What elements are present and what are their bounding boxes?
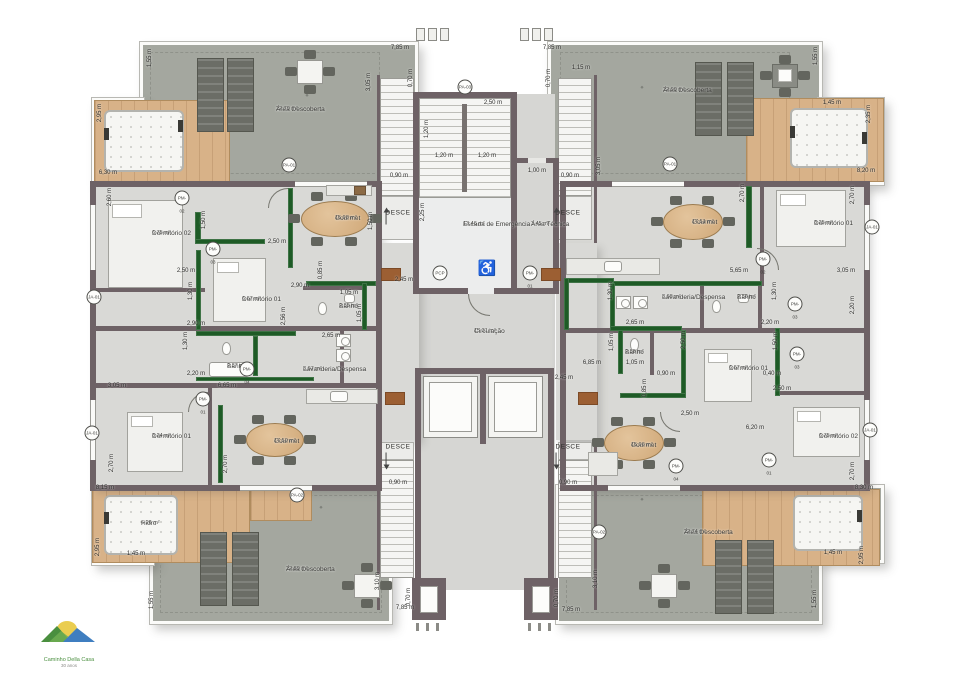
dimension-label: 0,70 m	[406, 588, 412, 606]
elevator-cabin	[494, 382, 537, 432]
roof-vent	[520, 28, 529, 41]
dimension-label: 1,30 m	[183, 332, 189, 350]
window	[864, 205, 870, 270]
sliding-door	[612, 181, 684, 187]
dimension-label: 2,50 m	[177, 268, 195, 274]
door-tag: PA-02	[592, 525, 607, 540]
tub-headrest	[857, 510, 862, 522]
roof-vent	[428, 28, 437, 41]
tub-headrest	[790, 126, 795, 138]
washing-machine	[616, 296, 631, 309]
kitchen-sink	[330, 391, 348, 402]
door-tag: PA-03	[458, 80, 473, 95]
door-tag: PM-01	[523, 266, 538, 281]
dimension-label: 2,70 m	[740, 184, 746, 202]
patio-table-set	[344, 565, 390, 607]
dimension-label: 2,20 m	[761, 320, 779, 326]
wall	[700, 283, 704, 328]
dimension-label: 3,05 m	[837, 268, 855, 274]
floor-plan: ♿	[0, 0, 962, 680]
door-tag: JA-01	[87, 290, 102, 305]
hidro-tub	[793, 495, 863, 551]
dimension-label: 1,45 m	[127, 551, 145, 557]
dimension-label: 6,20 m	[746, 425, 764, 431]
dimension-label: 2,70 m	[109, 454, 115, 472]
tub-headrest	[104, 512, 109, 524]
dimension-label: 2,50 m	[484, 100, 502, 106]
door-tag: PM-01	[762, 453, 777, 468]
dimension-label: 6,30 m	[99, 170, 117, 176]
dimension-label: 0,90 m	[559, 480, 577, 486]
dimension-label: 1,45 m	[823, 100, 841, 106]
dimension-label: 8,30 m	[855, 485, 873, 491]
section-tick	[548, 623, 551, 631]
dimension-label: 2,95 m	[859, 546, 865, 564]
section-tick	[426, 623, 429, 631]
dimension-label: 0,85 m	[318, 261, 324, 279]
hidro-tub	[790, 108, 868, 168]
desce-label: DESCE	[556, 210, 581, 217]
green-wall	[196, 331, 296, 336]
dimension-label: 0,40 m	[763, 371, 781, 377]
dimension-label: 1,55 m	[149, 591, 155, 609]
entry-mat	[385, 392, 405, 405]
green-wall	[196, 377, 314, 381]
dimension-label: 2,45 m	[395, 277, 413, 283]
sun-lounger	[727, 62, 754, 136]
dimension-label: 3,05 m	[366, 73, 372, 91]
tub-headrest	[178, 120, 183, 132]
desce-label: DESCE	[386, 210, 411, 217]
door-tag: PA-01	[663, 157, 678, 172]
corridor-wall	[415, 440, 421, 588]
core-wall	[413, 288, 517, 294]
dimension-label: 0,85 m	[642, 379, 648, 397]
sun-lounger	[227, 58, 254, 132]
wall	[650, 330, 654, 375]
dimension-label: 1,50 m	[201, 211, 207, 229]
dimension-label: 2,56 m	[281, 307, 287, 325]
dimension-label: 7,85 m	[396, 605, 414, 611]
toilet	[712, 300, 721, 313]
dimension-label: 3,05 m	[108, 383, 126, 389]
dimension-label: 2,65 m	[322, 333, 340, 339]
dimension-label: 8,15 m	[96, 485, 114, 491]
dimension-label: 1,20 m	[478, 153, 496, 159]
core-wall	[511, 288, 559, 294]
entry-mat	[541, 268, 561, 281]
tub-headrest	[862, 132, 867, 144]
dimension-label: 6,85 m	[583, 360, 601, 366]
dimension-label: 2,90 m	[187, 321, 205, 327]
door-tag: PM-03	[790, 347, 805, 362]
dimension-label: 1,55 m	[147, 49, 153, 67]
roof-vent	[416, 28, 425, 41]
door-tag: PM-03	[206, 242, 221, 257]
bed-pillow	[112, 204, 142, 218]
dimension-label: 2,25 m	[420, 203, 426, 221]
dimension-label: 2,95 m	[97, 104, 103, 122]
dimension-label: 1,50 m	[773, 332, 779, 350]
door-tag: PM-03	[788, 297, 803, 312]
bed-pillow	[797, 411, 821, 422]
section-tick	[436, 623, 439, 631]
washing-machine	[336, 349, 351, 362]
dimension-label: 2,70 m	[850, 462, 856, 480]
tub-headrest	[104, 128, 109, 140]
dimension-label: 2,20 m	[850, 296, 856, 314]
elevator-wall	[415, 368, 421, 444]
dimension-label: 2,50 m	[773, 386, 791, 392]
green-wall	[564, 278, 569, 330]
dimension-label: 1,15 m	[572, 65, 590, 71]
dimension-label: 1,55 m	[813, 47, 819, 65]
dimension-label: 2,35 m	[866, 105, 872, 123]
door-tag: PM-02	[756, 252, 771, 267]
wall	[560, 181, 870, 187]
dimension-label: 0,90 m	[389, 480, 407, 486]
stairs-bottom-left	[380, 460, 414, 578]
dimension-label: 1,05 m	[626, 360, 644, 366]
door-tag: PM-04	[669, 459, 684, 474]
green-wall	[618, 330, 623, 374]
dimension-label: 2,70 m	[223, 455, 229, 473]
dimension-label: 2,20 m	[187, 371, 205, 377]
elevator-wall	[480, 368, 486, 444]
kitchen-appliance	[354, 186, 366, 195]
dimension-label: 2,70 m	[850, 186, 856, 204]
kitchen-counter	[588, 452, 618, 476]
wall	[560, 485, 870, 491]
bed-pillow	[780, 194, 806, 206]
wheelchair-icon: ♿	[478, 259, 497, 277]
desce-label: DESCE	[556, 444, 581, 451]
elevator-wall	[548, 368, 554, 444]
section-tick	[528, 623, 531, 631]
sliding-door	[608, 485, 680, 491]
bed-pillow	[708, 353, 728, 363]
sun-lounger	[695, 62, 722, 136]
dimension-label: 0,70 m	[408, 69, 414, 87]
entry-door-recess	[420, 586, 438, 613]
dimension-label: 2,50 m	[681, 331, 687, 349]
green-wall	[196, 250, 201, 330]
corridor-wall	[548, 440, 554, 588]
door-tag: PM-01	[196, 392, 211, 407]
door-tag: PM-02	[175, 191, 190, 206]
door-tag: PCP	[433, 266, 448, 281]
entry-door-recess	[532, 586, 550, 613]
dimension-label: 1,50 m	[368, 212, 374, 230]
dimension-label: 2,95 m	[95, 538, 101, 556]
wall	[560, 328, 870, 333]
roof-vent	[544, 28, 553, 41]
elevator-cabin	[429, 382, 472, 432]
dimension-label: 2,90 m	[291, 283, 309, 289]
door-tag: JA-01	[85, 426, 100, 441]
sun-lounger	[747, 540, 774, 614]
tecnica-door-gap	[528, 158, 546, 163]
door-tag: PA-01	[282, 158, 297, 173]
kitchen-sink	[604, 261, 622, 272]
dimension-label: 2,60 m	[107, 188, 113, 206]
logo-mark	[37, 618, 101, 652]
bed-pillow	[217, 262, 239, 273]
sun-lounger	[197, 58, 224, 132]
green-wall	[746, 186, 752, 248]
dimension-label: 2,50 m	[681, 411, 699, 417]
door-tag: PM-04	[240, 362, 255, 377]
dimension-label: 8,20 m	[857, 168, 875, 174]
washing-machine	[633, 296, 648, 309]
green-wall	[612, 281, 762, 286]
dimension-label: 1,20 m	[424, 120, 430, 138]
green-wall	[566, 278, 614, 283]
company-logo: Caminho Della Casa 30 anos	[26, 618, 112, 668]
dimension-label: 1,30 m	[772, 282, 778, 300]
dimension-label: 1,20 m	[435, 153, 453, 159]
green-wall	[620, 393, 686, 398]
dimension-label: 3,10 m	[593, 570, 599, 588]
core-wall	[413, 92, 419, 294]
dimension-label: 3,10 m	[375, 572, 381, 590]
green-wall	[195, 239, 265, 244]
dimension-label: 0,70 m	[554, 589, 560, 607]
dimension-label: 7,85 m	[391, 45, 409, 51]
entry-mat	[578, 392, 598, 405]
desce-label: DESCE	[386, 444, 411, 451]
toilet	[318, 302, 327, 315]
dimension-label: 1,45 m	[824, 550, 842, 556]
window	[90, 205, 96, 270]
sun-lounger	[715, 540, 742, 614]
roof-vent	[532, 28, 541, 41]
patio-table-set	[642, 566, 687, 606]
hidro-tub	[104, 110, 184, 172]
dimension-label: 1,05 m	[609, 333, 615, 351]
bed-pillow	[131, 416, 153, 427]
dimension-label: 1,30 m	[188, 282, 194, 300]
dimension-label: 1,05 m	[340, 290, 358, 296]
dimension-label: 2,50 m	[268, 239, 286, 245]
dimension-label: 7,85 m	[562, 607, 580, 613]
dimension-label: 1,05 m	[357, 304, 363, 322]
dimension-label: 2,65 m	[626, 320, 644, 326]
toilet	[222, 342, 231, 355]
dimension-label: 1,00 m	[528, 168, 546, 174]
roof-vent	[440, 28, 449, 41]
dimension-label: 2,45 m	[555, 375, 573, 381]
dimension-label: 7,85 m	[543, 45, 561, 51]
core-wall	[511, 92, 517, 294]
dimension-label: 0,70 m	[546, 69, 552, 87]
section-tick	[416, 623, 419, 631]
dimension-label: 0,90 m	[561, 173, 579, 179]
section-t tick	[538, 623, 541, 631]
dimension-label: 0,90 m	[657, 371, 675, 377]
door-tag: JA-01	[863, 423, 878, 438]
sun-lounger	[200, 532, 227, 606]
dimension-label: 1,30 m	[608, 282, 614, 300]
sun-lounger	[232, 532, 259, 606]
door-tag: JA-01	[865, 220, 880, 235]
patio-table-set	[288, 52, 332, 92]
dimension-label: 3,05 m	[596, 157, 602, 175]
stair-divider	[462, 104, 467, 192]
dimension-label: 0,90 m	[390, 173, 408, 179]
wall	[90, 485, 382, 491]
dimension-label: 6,65 m	[218, 383, 236, 389]
patio-table-set	[763, 57, 807, 95]
door-tag: PA-02	[290, 488, 305, 503]
dimension-label: 1,55 m	[812, 590, 818, 608]
logo-subtext: 30 anos	[26, 663, 112, 668]
dimension-label: 5,65 m	[730, 268, 748, 274]
